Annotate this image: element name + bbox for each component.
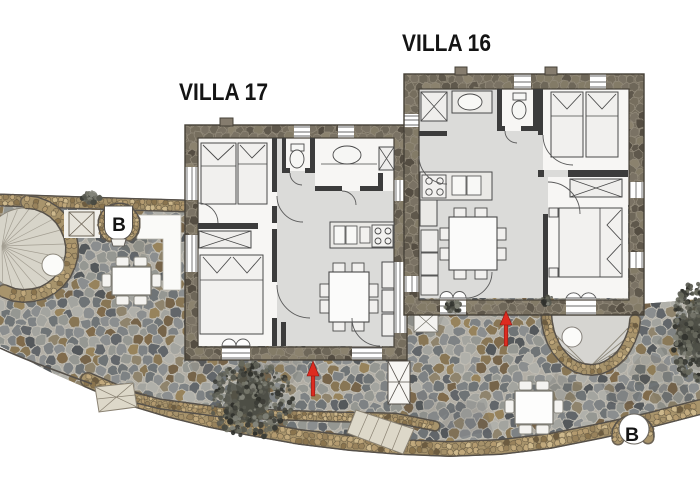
svg-text:B: B — [112, 215, 126, 236]
svg-text:VILLA 17: VILLA 17 — [179, 79, 268, 106]
svg-text:VILLA 16: VILLA 16 — [402, 30, 491, 57]
svg-text:B: B — [625, 424, 639, 446]
